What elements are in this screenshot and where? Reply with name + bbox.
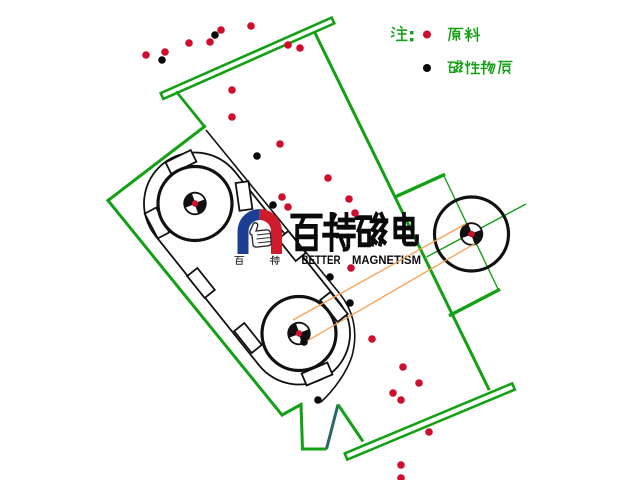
svg-text:BETTER: BETTER	[302, 255, 342, 267]
svg-text:MAGNETISM: MAGNETISM	[352, 255, 421, 267]
